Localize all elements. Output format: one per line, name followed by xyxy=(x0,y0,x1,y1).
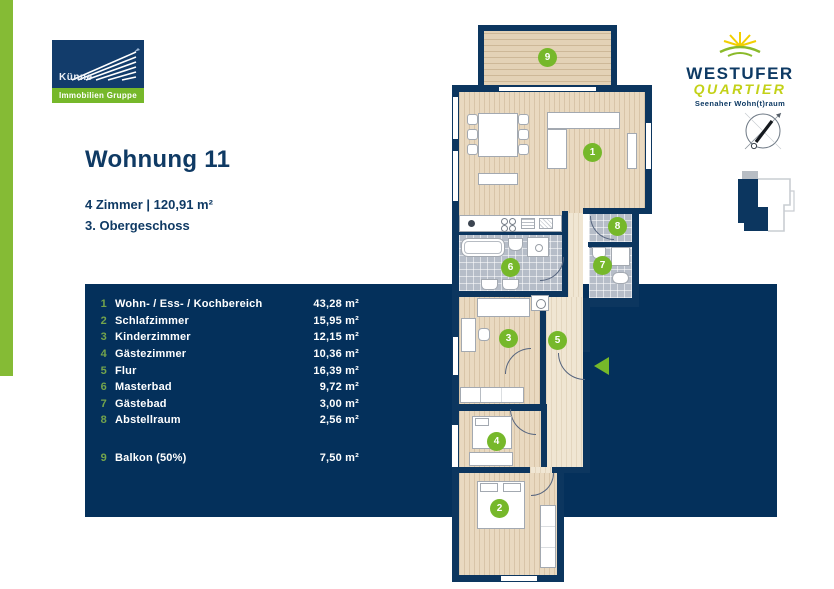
pillow xyxy=(503,483,521,492)
wall-segment xyxy=(452,467,590,473)
window xyxy=(452,150,459,202)
bench xyxy=(469,452,513,466)
chair xyxy=(478,328,490,341)
floor-flur-upper xyxy=(568,213,583,303)
chair xyxy=(518,129,529,140)
wall-segment xyxy=(632,208,639,307)
sofa xyxy=(547,112,620,129)
bed xyxy=(477,298,530,317)
shower-drain-icon xyxy=(535,244,543,252)
pillow xyxy=(480,483,498,492)
wall-segment xyxy=(583,380,590,472)
chair xyxy=(467,129,478,140)
wall-segment xyxy=(611,25,617,88)
wall-segment xyxy=(583,208,652,214)
room-marker-8: 8 xyxy=(608,217,627,236)
chair xyxy=(467,144,478,155)
bidet xyxy=(502,279,519,290)
window xyxy=(500,575,538,582)
wall-segment xyxy=(557,473,564,575)
dining-table xyxy=(478,113,518,157)
floor-plan: 1 2 3 4 5 6 7 8 9 xyxy=(0,0,834,589)
burner-icon xyxy=(509,225,516,232)
tv-board xyxy=(627,133,637,169)
wardrobe xyxy=(540,505,556,568)
appliance-icon xyxy=(539,218,553,229)
bathtub xyxy=(461,238,505,257)
wall-segment xyxy=(459,232,562,235)
desk xyxy=(461,318,476,352)
room-marker-3: 3 xyxy=(499,329,518,348)
window xyxy=(451,424,459,468)
wall-segment xyxy=(562,211,568,297)
room-marker-2: 2 xyxy=(490,499,509,518)
toilet xyxy=(481,279,498,290)
chair xyxy=(467,114,478,125)
room-marker-1: 1 xyxy=(583,143,602,162)
entry-arrow-icon xyxy=(594,357,609,375)
floor-flur xyxy=(546,297,583,467)
room-marker-7: 7 xyxy=(593,256,612,275)
washbasin xyxy=(508,238,523,251)
room-marker-9: 9 xyxy=(538,48,557,67)
burner-icon xyxy=(509,218,516,225)
pillow xyxy=(475,418,489,426)
oven-icon xyxy=(521,218,535,229)
wall-segment xyxy=(583,303,590,352)
burner-icon xyxy=(501,225,508,232)
window xyxy=(645,122,652,170)
washer-door-icon xyxy=(536,299,546,309)
room-marker-5: 5 xyxy=(548,331,567,350)
chair xyxy=(518,114,529,125)
chair xyxy=(518,144,529,155)
wall-segment xyxy=(478,25,617,31)
wall-segment xyxy=(540,297,546,404)
wall-segment xyxy=(583,298,639,307)
room-marker-4: 4 xyxy=(487,432,506,451)
room-marker-6: 6 xyxy=(501,258,520,277)
toilet xyxy=(612,272,629,284)
window xyxy=(452,96,459,140)
window xyxy=(452,336,459,376)
shower xyxy=(611,247,630,266)
wall-segment xyxy=(478,25,484,88)
flyer-page: Künne Immobilien Gruppe Wohnung 11 4 Zim… xyxy=(0,0,834,589)
sideboard xyxy=(478,173,518,185)
sofa xyxy=(547,129,567,169)
wall-segment xyxy=(452,291,568,297)
wall-segment xyxy=(541,411,547,467)
window xyxy=(498,86,597,92)
burner-icon xyxy=(501,218,508,225)
sink-icon xyxy=(468,220,475,227)
wardrobe xyxy=(460,387,524,403)
